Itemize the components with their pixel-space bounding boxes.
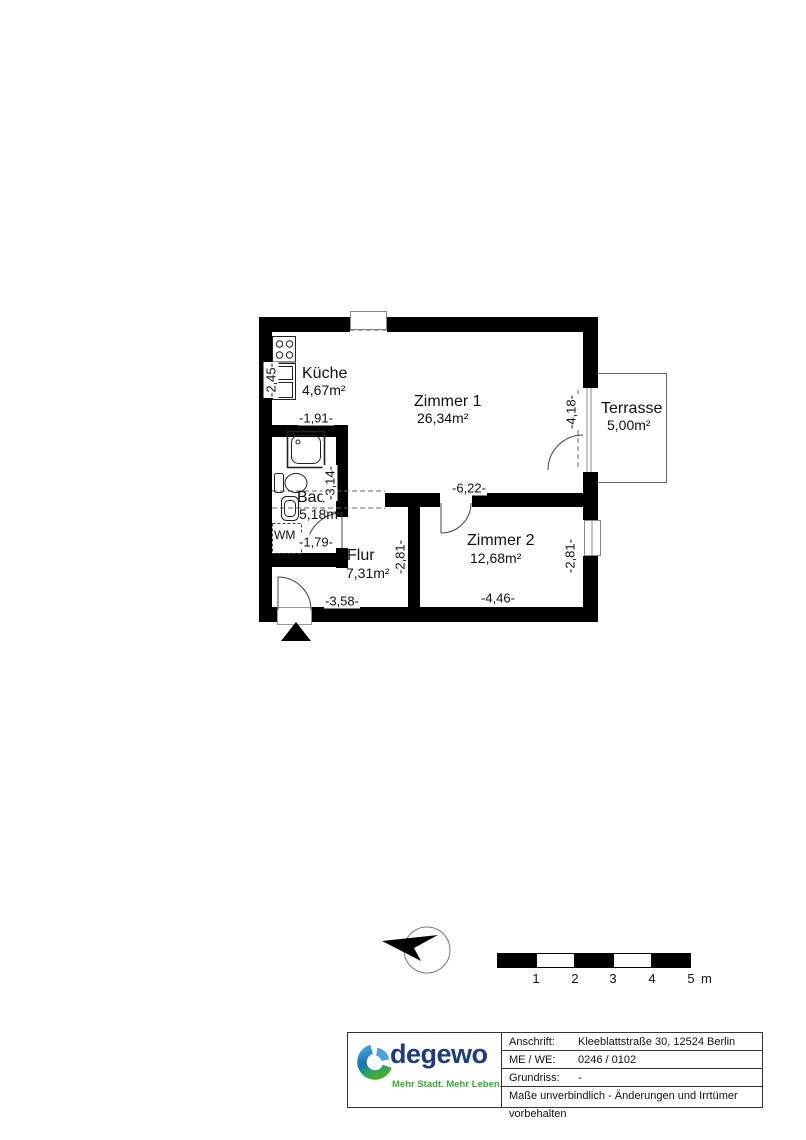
title-block-table: Anschrift: Kleeblattstraße 30, 12524 Ber… bbox=[501, 1033, 762, 1107]
room-label-bad: Bad bbox=[297, 489, 325, 507]
row-value: - bbox=[578, 1069, 582, 1087]
terrace-door-arc bbox=[548, 435, 583, 470]
room-label-terrasse: Terrasse bbox=[601, 400, 662, 418]
scale-tick-3: 3 bbox=[609, 971, 616, 986]
kitchen-window-frame bbox=[350, 311, 387, 330]
wall-middle-right bbox=[472, 493, 583, 507]
degewo-logo: degewo Mehr Stadt. Mehr Leben. bbox=[348, 1033, 501, 1107]
title-block: degewo Mehr Stadt. Mehr Leben. Anschrift… bbox=[347, 1032, 763, 1108]
scale-segment bbox=[536, 954, 576, 967]
room-label-zimmer1: Zimmer 1 bbox=[414, 393, 482, 411]
title-row-me-we: ME / WE: 0246 / 0102 bbox=[502, 1051, 762, 1069]
dim-zimmer1-depth: -4,18- bbox=[564, 394, 579, 430]
north-arrow-icon bbox=[382, 927, 450, 973]
scale-segment bbox=[498, 954, 536, 967]
scale-tick-1: 1 bbox=[532, 971, 539, 986]
dim-zimmer1-width: -6,22- bbox=[451, 481, 487, 496]
row-label: Grundriss: bbox=[509, 1069, 560, 1087]
scale-unit: m bbox=[701, 971, 712, 986]
scale-tick-2: 2 bbox=[571, 971, 578, 986]
row-label: Anschrift: bbox=[509, 1033, 555, 1051]
dim-zimmer2-width: -4,46- bbox=[480, 591, 516, 606]
wall-bad-bottom bbox=[266, 553, 348, 567]
dim-flur-depth: -2,81- bbox=[393, 539, 408, 575]
room-area-zimmer1: 26,34m² bbox=[417, 410, 468, 426]
title-row-anschrift: Anschrift: Kleeblattstraße 30, 12524 Ber… bbox=[502, 1033, 762, 1051]
dim-flur-width: -3,58- bbox=[324, 594, 360, 609]
row-value: Kleeblattstraße 30, 12524 Berlin bbox=[578, 1033, 735, 1051]
zimmer2-window-frame bbox=[584, 520, 601, 556]
brand-tagline: Mehr Stadt. Mehr Leben. bbox=[392, 1079, 502, 1090]
washbasin-icon bbox=[282, 497, 299, 521]
row-label: ME / WE: bbox=[509, 1051, 555, 1069]
opening-terrace-door bbox=[583, 388, 598, 472]
brand-name: degewo bbox=[390, 1039, 488, 1070]
stove-icon bbox=[273, 337, 296, 363]
zimmer2-door-arc bbox=[441, 503, 471, 533]
room-area-flur: 7,31m² bbox=[346, 565, 390, 581]
room-area-zimmer2: 12,68m² bbox=[470, 550, 521, 566]
wall-top bbox=[259, 317, 598, 332]
room-label-flur: Flur bbox=[347, 547, 375, 565]
door-swings bbox=[278, 435, 583, 610]
entry-door-arc bbox=[278, 577, 311, 610]
scale-tick-4: 4 bbox=[648, 971, 655, 986]
dim-bad-width: -1,79- bbox=[298, 535, 334, 550]
room-label-zimmer2: Zimmer 2 bbox=[467, 532, 535, 550]
floorplan-page: Küche 4,67m² Zimmer 1 26,34m² Terrasse 5… bbox=[0, 0, 806, 1140]
scale-segment bbox=[613, 954, 653, 967]
title-row-grundriss: Grundriss: - bbox=[502, 1069, 762, 1087]
scale-segment bbox=[575, 954, 613, 967]
room-area-terrasse: 5,00m² bbox=[607, 417, 651, 433]
room-label-kueche: Küche bbox=[302, 365, 347, 383]
washing-machine-label: WM bbox=[274, 528, 295, 542]
wall-bad-right-upper bbox=[336, 425, 348, 517]
scale-bar bbox=[497, 953, 691, 968]
wall-flur-zimmer2 bbox=[408, 493, 420, 614]
dim-kueche-depth: -2,45- bbox=[264, 362, 279, 398]
scale-segment bbox=[652, 954, 690, 967]
dim-bad-depth: -3,14- bbox=[323, 465, 338, 501]
dim-kueche-width: -1,91- bbox=[298, 411, 334, 426]
entry-threshold bbox=[277, 607, 312, 625]
room-area-bad: 5,18m² bbox=[299, 506, 343, 522]
dim-zimmer2-depth: -2,81- bbox=[563, 538, 578, 574]
row-value: 0246 / 0102 bbox=[578, 1051, 636, 1069]
title-row-disclaimer: Maße unverbindlich - Änderungen und Irrt… bbox=[502, 1087, 762, 1105]
room-area-kueche: 4,67m² bbox=[302, 382, 346, 398]
scale-tick-5: 5 bbox=[687, 971, 694, 986]
